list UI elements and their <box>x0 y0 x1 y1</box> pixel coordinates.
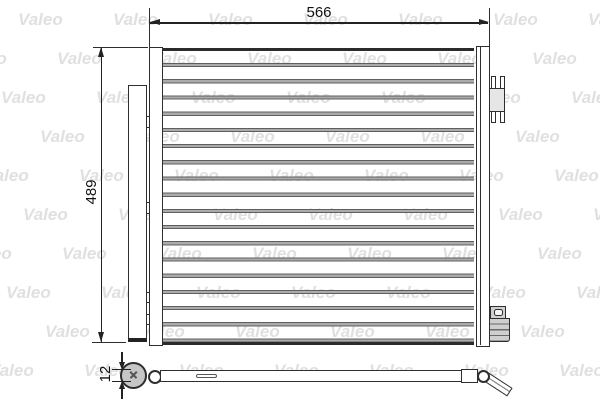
watermark-text: Valeo <box>554 166 599 186</box>
watermark-text: Valeo <box>0 361 34 381</box>
watermark-text: Valeo <box>1 88 46 108</box>
watermark-text: Valeo <box>23 205 68 225</box>
watermark-text: Valeo <box>593 205 600 225</box>
diameter-arrow-shaft-top <box>121 352 122 362</box>
watermark-text: Valeo <box>57 49 102 69</box>
outlet-fitting-body <box>488 318 510 342</box>
outlet-fitting-port <box>494 309 503 316</box>
technical-drawing-condenser: ValeoValeoValeoValeoValeoValeoValeoValeo… <box>0 0 600 400</box>
width-dimension-label: 566 <box>289 5 349 21</box>
pipe-diameter-label: 12 <box>98 353 114 395</box>
watermark-text: Valeo <box>520 322 565 342</box>
watermark-text: Valeo <box>398 10 443 30</box>
diameter-arrow-shaft-bottom <box>121 389 122 399</box>
height-dimension-line <box>101 48 102 342</box>
right-header-tank <box>476 46 490 347</box>
right-tank-inner-line <box>480 47 481 345</box>
watermark-text: Valeo <box>537 244 582 264</box>
watermark-text: Valeo <box>571 88 600 108</box>
diameter-tick-bottom <box>112 381 131 382</box>
watermark-text: Valeo <box>45 322 90 342</box>
extension-line-left <box>149 8 150 48</box>
watermark-text: Valeo <box>18 10 63 30</box>
inlet-fitting-body <box>489 88 505 112</box>
extension-line-right <box>489 8 490 46</box>
watermark-text: Valeo <box>0 49 7 69</box>
watermark-text: Valeo <box>0 166 29 186</box>
pipe-clamp <box>461 369 478 383</box>
watermark-text: Valeo <box>515 127 560 147</box>
arrowhead-left-icon <box>150 19 160 25</box>
mounting-bracket <box>128 85 147 342</box>
left-header-tank <box>149 47 163 346</box>
arrowhead-up-icon <box>98 47 104 57</box>
condenser-core <box>162 48 474 345</box>
pipe-joint-circle <box>477 370 491 384</box>
arrowhead-up-icon <box>119 381 125 389</box>
watermark-text: Valeo <box>498 205 543 225</box>
watermark-text: Valeo <box>208 10 253 30</box>
pipe-slot-detail <box>196 374 217 378</box>
watermark-text: Valeo <box>6 283 51 303</box>
watermark-text: Valeo <box>493 10 538 30</box>
watermark-text: Valeo <box>576 283 600 303</box>
arrowhead-right-icon <box>479 19 489 25</box>
watermark-text: Valeo <box>0 244 12 264</box>
watermark-text: Valeo <box>559 361 600 381</box>
diameter-tick-top <box>112 369 131 370</box>
watermark-text: Valeo <box>40 127 85 147</box>
watermark-text: Valeo <box>588 10 600 30</box>
watermark-text: Valeo <box>532 49 577 69</box>
arrowhead-down-icon <box>98 332 104 342</box>
height-dimension-label: 489 <box>84 170 100 214</box>
width-dimension-line <box>150 22 488 23</box>
